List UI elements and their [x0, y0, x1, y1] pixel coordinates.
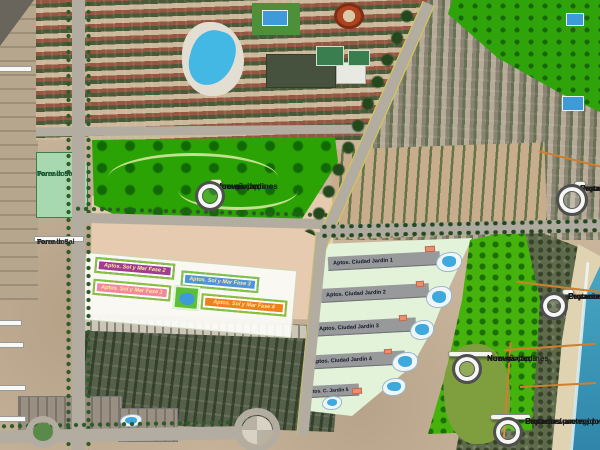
pool-water: [179, 292, 195, 305]
roundabout-center: [242, 416, 272, 444]
edge-label-ave: AVE 5'): [0, 416, 26, 422]
sol-y-mar-fase-2-bar: Aptos. Sol y Mar Fase 2: [94, 257, 175, 280]
roundabout-main: [234, 408, 280, 450]
roundabout-center: [33, 423, 53, 441]
pool-water: [327, 399, 338, 406]
pool-water: [398, 356, 412, 367]
tree-line: [86, 0, 91, 450]
pareados-label-box: Pareados Torre la Sal: [34, 236, 84, 242]
edge-label-75min: to de (75'): [0, 385, 26, 391]
map-marker-ring: [556, 184, 588, 216]
sol-y-mar-pool-plot: [172, 285, 200, 311]
sports-court: [316, 46, 344, 66]
callout-line-ru: Новый сад: [487, 354, 531, 364]
edge-label-20min: to de (20'): [0, 66, 32, 72]
aerial-masterplan-map[interactable]: Pareados Torre la Sal Aptos. Ciudad Jard…: [0, 0, 600, 450]
sol-y-mar-fase-4-bar: Aptos. Sol y Mar Fase 4: [200, 293, 287, 316]
tree-line: [66, 0, 71, 450]
map-marker-ring: [540, 292, 568, 320]
pool-water: [432, 291, 446, 303]
pool-top-center: [262, 10, 288, 26]
pool-top-right: [562, 96, 584, 111]
road-left-vertical: [72, 0, 85, 450]
protected-areas-callout-mid: Espacios protegidos Protected areas Охра…: [562, 289, 574, 295]
callout-line-ru: Охраняемые территории: [525, 417, 600, 427]
small-building: [384, 349, 392, 355]
pool-top-right: [566, 13, 584, 26]
sports-court: [348, 50, 370, 66]
map-marker-ring: [452, 354, 482, 384]
map-marker-ring: [493, 417, 523, 447]
small-building: [425, 246, 435, 253]
roundabout-left: [26, 416, 60, 448]
sol-y-mar-fase-1-bar: Aptos. Sol y Mar Fase 1: [92, 279, 171, 302]
map-marker-ring: [195, 181, 225, 211]
pareados-line-2: Torre la Sal: [37, 239, 75, 248]
pool-water: [442, 256, 456, 267]
pool-water: [415, 324, 428, 335]
circular-building: [334, 3, 364, 29]
pool-water: [387, 382, 400, 392]
small-building: [416, 281, 424, 288]
edge-label-a7: A7: [0, 320, 22, 326]
small-building: [399, 315, 407, 322]
parking-strip: [0, 0, 38, 300]
callout-line-ru: Охраняемые территории: [568, 292, 600, 302]
edge-label-ctra-340: tra. 340: [0, 342, 24, 348]
small-building: [352, 388, 362, 395]
